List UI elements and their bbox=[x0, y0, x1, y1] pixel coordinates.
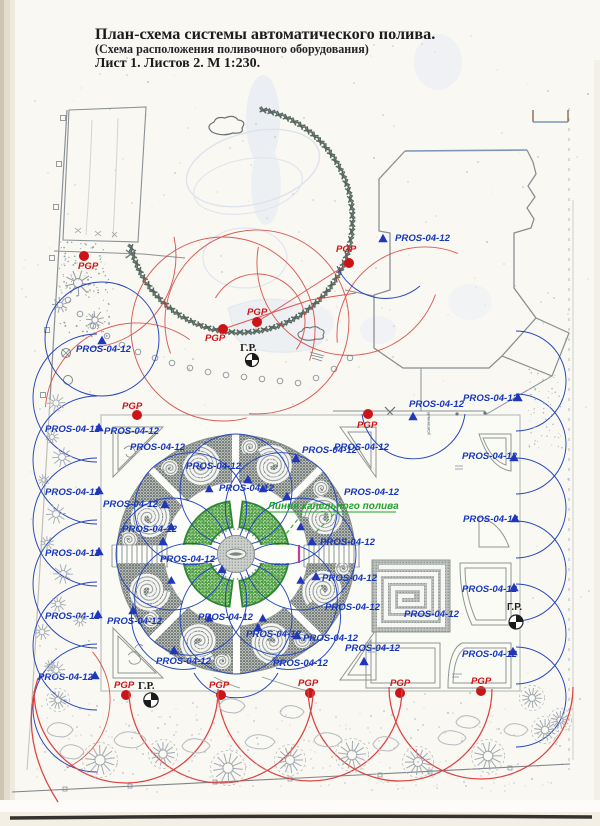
svg-text:PROS-04-12: PROS-04-12 bbox=[38, 672, 94, 683]
svg-text:PROS-04-12: PROS-04-12 bbox=[76, 344, 132, 355]
svg-text:PGP: PGP bbox=[78, 261, 99, 272]
svg-text:PROS-04-12: PROS-04-12 bbox=[186, 461, 242, 472]
svg-text:PROS-04-12: PROS-04-12 bbox=[325, 602, 381, 613]
svg-text:(Схема расположения поливочног: (Схема расположения поливочного оборудов… bbox=[95, 42, 369, 56]
svg-text:PROS-04-12: PROS-04-12 bbox=[344, 487, 400, 498]
svg-text:PGP: PGP bbox=[205, 333, 226, 344]
svg-text:PROS-04-12: PROS-04-12 bbox=[130, 442, 186, 453]
svg-text:Г.Р.: Г.Р. bbox=[507, 602, 522, 613]
svg-text:PROS-04-12: PROS-04-12 bbox=[45, 611, 101, 622]
svg-text:Лист 1. Листов 2. М 1:230.: Лист 1. Листов 2. М 1:230. bbox=[95, 56, 260, 71]
svg-text:PROS-04-12: PROS-04-12 bbox=[462, 451, 518, 462]
svg-text:PROS-04-12: PROS-04-12 bbox=[156, 656, 212, 667]
svg-text:PROS-04-12: PROS-04-12 bbox=[45, 548, 101, 559]
svg-text:усиленный: усиленный bbox=[425, 412, 431, 435]
svg-text:PGP: PGP bbox=[298, 678, 319, 689]
svg-text:PGP: PGP bbox=[247, 307, 268, 318]
svg-text:PROS-04-12: PROS-04-12 bbox=[160, 554, 216, 565]
svg-text:PGP: PGP bbox=[357, 420, 378, 431]
svg-text:PROS-04-12: PROS-04-12 bbox=[273, 658, 329, 669]
svg-text:PGP: PGP bbox=[114, 680, 135, 691]
svg-text:PROS-04-12: PROS-04-12 bbox=[409, 399, 465, 410]
svg-text:PROS-04-12: PROS-04-12 bbox=[463, 514, 519, 525]
svg-text:PROS-04-12: PROS-04-12 bbox=[404, 609, 460, 620]
svg-text:Г.Р.: Г.Р. bbox=[240, 342, 257, 354]
svg-text:PGP: PGP bbox=[122, 401, 143, 412]
svg-text:Г.Р.: Г.Р. bbox=[138, 680, 155, 692]
svg-text:PROS-04-12: PROS-04-12 bbox=[395, 233, 451, 244]
svg-text:PGP: PGP bbox=[336, 244, 357, 255]
svg-text:План-схема системы автоматичес: План-схема системы автоматического полив… bbox=[95, 25, 435, 43]
svg-text:PROS-04-12: PROS-04-12 bbox=[45, 424, 101, 435]
svg-text:PROS-04-12: PROS-04-12 bbox=[322, 573, 378, 584]
svg-text:PROS-04-12: PROS-04-12 bbox=[219, 483, 275, 494]
svg-text:PROS-04-12: PROS-04-12 bbox=[463, 393, 519, 404]
svg-text:Линия капельного полива: Линия капельного полива bbox=[267, 501, 399, 512]
svg-text:PROS-04-12: PROS-04-12 bbox=[462, 584, 518, 595]
svg-text:PGP: PGP bbox=[209, 680, 230, 691]
svg-text:PROS-04-12: PROS-04-12 bbox=[320, 537, 376, 548]
svg-text:PROS-04-12: PROS-04-12 bbox=[107, 616, 163, 627]
svg-text:PGP: PGP bbox=[471, 676, 492, 687]
svg-text:PROS-04-12: PROS-04-12 bbox=[104, 426, 160, 437]
svg-text:PROS-04-12: PROS-04-12 bbox=[45, 487, 101, 498]
svg-text:PGP: PGP bbox=[390, 678, 411, 689]
svg-text:PROS-04-12: PROS-04-12 bbox=[334, 442, 390, 453]
svg-text:PROS-04-12: PROS-04-12 bbox=[103, 499, 159, 510]
